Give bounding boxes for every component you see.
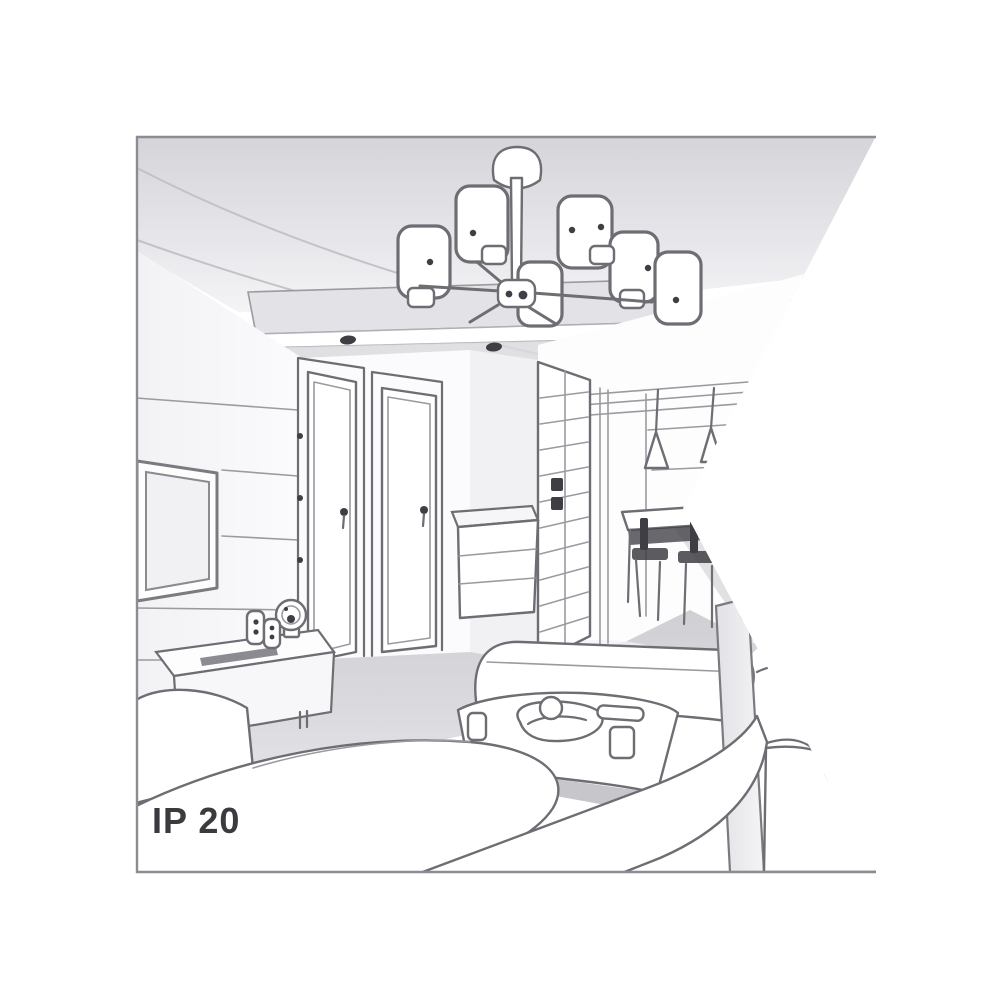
- small-cup: [468, 713, 486, 740]
- ip-rating-label: IP 20: [152, 800, 240, 842]
- room-sketch: [0, 0, 1000, 1000]
- glass: [610, 727, 634, 758]
- wall-tv-panel: [137, 461, 217, 601]
- hallway-dresser: [452, 506, 538, 618]
- bun: [540, 697, 562, 719]
- hallway-wardrobe: [538, 362, 590, 662]
- remote-control: [597, 705, 644, 721]
- center-hub: [498, 280, 535, 307]
- product-illustration: IP 20: [0, 0, 1000, 1000]
- door-right: [372, 372, 442, 656]
- door-left: [297, 358, 364, 664]
